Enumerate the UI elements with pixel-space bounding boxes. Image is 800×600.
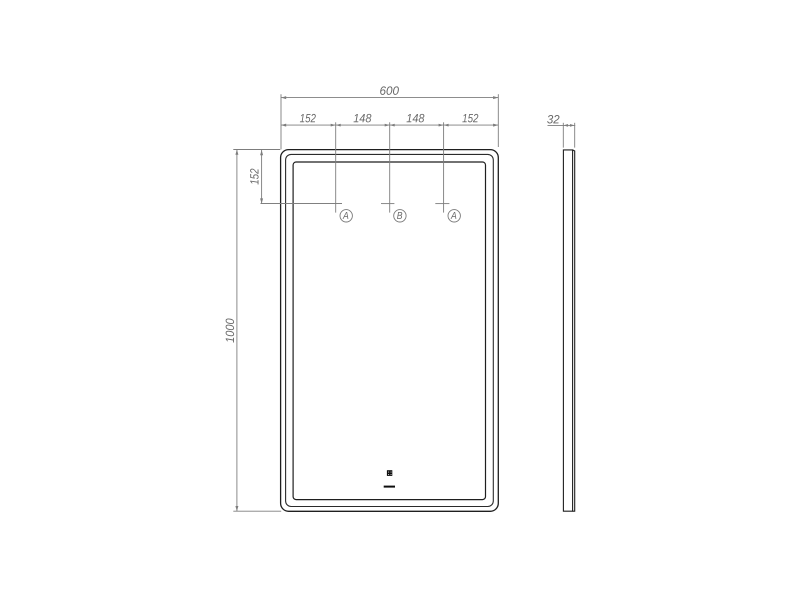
svg-text:152: 152	[462, 111, 479, 125]
svg-text:600: 600	[380, 84, 400, 98]
svg-text:A: A	[342, 211, 349, 222]
svg-text:152: 152	[247, 168, 261, 185]
svg-text:152: 152	[300, 111, 317, 125]
svg-text:32: 32	[547, 112, 560, 126]
svg-text:A: A	[450, 211, 457, 222]
svg-text:B: B	[397, 211, 403, 222]
svg-text:1000: 1000	[223, 318, 237, 343]
svg-text:148: 148	[406, 111, 424, 125]
svg-text:148: 148	[353, 111, 371, 125]
